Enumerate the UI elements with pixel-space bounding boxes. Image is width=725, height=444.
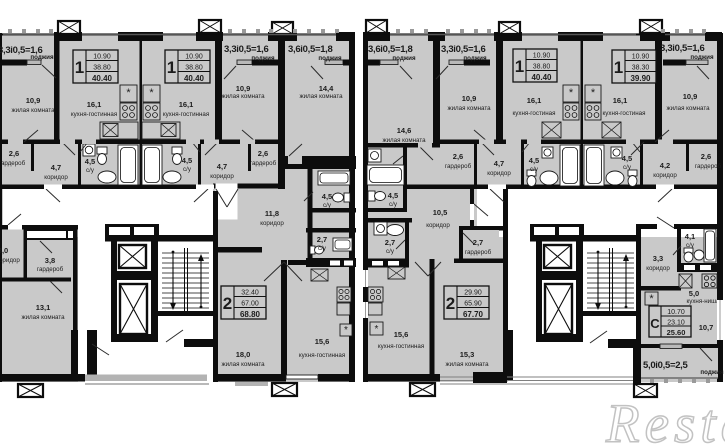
svg-text:кухня-гостинная: кухня-гостинная: [71, 111, 117, 118]
svg-text:*: *: [569, 87, 574, 99]
svg-text:10.90: 10.90: [93, 54, 111, 61]
svg-text:поджия: поджия: [30, 54, 54, 61]
svg-text:10,5: 10,5: [433, 208, 448, 217]
svg-text:кухня-гостинная: кухня-гостинная: [378, 343, 424, 350]
svg-text:с/у: с/у: [86, 167, 95, 174]
svg-text:2: 2: [223, 294, 232, 313]
svg-text:кухня-гостинная: кухня-гостинная: [299, 352, 345, 359]
svg-text:10.70: 10.70: [667, 309, 685, 316]
svg-text:кухня-гостинная: кухня-гостинная: [163, 111, 209, 118]
svg-text:поджия: поджия: [463, 55, 487, 62]
svg-text:1: 1: [167, 58, 176, 77]
svg-text:68.80: 68.80: [240, 310, 261, 319]
svg-text:коридор: коридор: [210, 173, 234, 180]
svg-text:жилая комната: жилая комната: [221, 361, 265, 368]
svg-text:10,9: 10,9: [683, 92, 698, 101]
svg-text:40.40: 40.40: [92, 74, 113, 83]
svg-text:коридор: коридор: [426, 222, 450, 229]
svg-text:коридор: коридор: [260, 220, 284, 227]
svg-text:14,4: 14,4: [319, 84, 334, 93]
svg-text:39.90: 39.90: [630, 74, 651, 83]
svg-text:10,9: 10,9: [236, 84, 251, 93]
svg-text:10,7: 10,7: [699, 323, 714, 332]
svg-text:15,3: 15,3: [460, 350, 475, 359]
svg-text:с/у: с/у: [386, 248, 395, 255]
svg-text:2,6: 2,6: [258, 149, 268, 158]
svg-text:2,7: 2,7: [385, 238, 395, 247]
svg-text:2,7: 2,7: [317, 235, 327, 244]
svg-text:3,3i0,5=1,6: 3,3i0,5=1,6: [441, 44, 486, 55]
svg-text:5,0: 5,0: [689, 289, 699, 298]
svg-text:гардероб: гардероб: [695, 163, 722, 170]
svg-text:4,5: 4,5: [529, 156, 539, 165]
svg-text:25.60: 25.60: [667, 328, 686, 337]
svg-text:Restate: Restate: [605, 393, 725, 444]
svg-text:С: С: [650, 316, 660, 331]
svg-text:с/у: с/у: [389, 201, 398, 208]
svg-text:*: *: [591, 87, 596, 99]
svg-text:с/у: с/у: [623, 164, 632, 171]
svg-text:*: *: [344, 325, 348, 336]
svg-text:коридор: коридор: [0, 257, 20, 264]
svg-text:2,6: 2,6: [701, 152, 711, 161]
svg-text:жилая комната: жилая комната: [445, 361, 489, 368]
svg-text:2,6: 2,6: [9, 149, 19, 158]
svg-text:40.40: 40.40: [531, 73, 552, 82]
svg-text:2,7: 2,7: [473, 238, 483, 247]
svg-text:10,9: 10,9: [462, 94, 477, 103]
svg-text:поджия: поджия: [392, 55, 416, 62]
svg-text:10.90: 10.90: [632, 54, 650, 61]
svg-text:2,6: 2,6: [453, 152, 463, 161]
svg-text:гардероб: гардероб: [250, 160, 277, 167]
svg-text:13,1: 13,1: [36, 303, 51, 312]
svg-text:*: *: [126, 87, 131, 99]
svg-text:1: 1: [75, 58, 84, 77]
svg-text:3,3: 3,3: [653, 254, 663, 263]
svg-text:жилая комната: жилая комната: [11, 107, 55, 114]
svg-text:1: 1: [614, 58, 623, 77]
svg-text:жилая комната: жилая комната: [666, 105, 710, 112]
svg-text:10.90: 10.90: [533, 53, 551, 60]
svg-text:кухня-гостиная: кухня-гостиная: [603, 110, 646, 117]
svg-text:10.90: 10.90: [185, 54, 203, 61]
svg-text:3,3i0,5=1,6: 3,3i0,5=1,6: [224, 44, 269, 55]
svg-text:38.80: 38.80: [93, 65, 111, 72]
svg-text:гардероб: гардероб: [445, 163, 472, 170]
svg-text:кухня-ниша: кухня-ниша: [686, 298, 720, 305]
svg-text:4,5: 4,5: [388, 191, 398, 200]
svg-text:4,5: 4,5: [85, 157, 95, 166]
svg-text:коридор: коридор: [653, 172, 677, 179]
svg-text:3,8: 3,8: [45, 256, 55, 265]
svg-text:38.30: 38.30: [632, 65, 650, 72]
svg-text:4,5: 4,5: [622, 154, 632, 163]
svg-text:с/у: с/у: [183, 166, 192, 173]
svg-text:1: 1: [515, 57, 524, 76]
svg-text:3,0: 3,0: [0, 246, 8, 255]
svg-text:16,1: 16,1: [179, 100, 194, 109]
svg-text:16,1: 16,1: [613, 96, 628, 105]
svg-text:с/у: с/у: [323, 202, 332, 209]
svg-text:жилая комната: жилая комната: [299, 93, 343, 100]
svg-text:18,0: 18,0: [236, 350, 251, 359]
svg-text:с/у: с/у: [318, 245, 327, 252]
svg-text:23.10: 23.10: [667, 320, 685, 327]
svg-text:*: *: [149, 87, 154, 99]
svg-text:коридор: коридор: [487, 170, 511, 177]
svg-text:жилая комната: жилая комната: [382, 137, 426, 144]
svg-text:*: *: [649, 293, 654, 305]
svg-text:4,5: 4,5: [182, 156, 192, 165]
svg-text:4,5: 4,5: [322, 192, 332, 201]
svg-text:с/у: с/у: [530, 166, 539, 173]
svg-text:*: *: [375, 324, 379, 335]
svg-text:поджия: поджия: [690, 54, 714, 61]
svg-text:29.90: 29.90: [464, 290, 482, 297]
svg-text:поджия: поджия: [251, 55, 275, 62]
svg-text:3,6i0,5=1,8: 3,6i0,5=1,8: [368, 44, 413, 55]
svg-text:38.80: 38.80: [533, 64, 551, 71]
svg-text:4,7: 4,7: [217, 162, 227, 171]
svg-text:жилая комната: жилая комната: [447, 105, 491, 112]
svg-text:15,6: 15,6: [394, 330, 409, 339]
svg-text:38.80: 38.80: [185, 65, 203, 72]
svg-text:4,7: 4,7: [494, 159, 504, 168]
svg-text:16,1: 16,1: [87, 100, 102, 109]
svg-text:3,3i0,5=1,6: 3,3i0,5=1,6: [660, 43, 705, 54]
svg-text:32.40: 32.40: [241, 290, 259, 297]
svg-text:коридор: коридор: [646, 265, 670, 272]
svg-text:67.70: 67.70: [463, 310, 484, 319]
svg-text:16,1: 16,1: [527, 96, 542, 105]
svg-text:4,7: 4,7: [51, 163, 61, 172]
svg-text:гардероб: гардероб: [0, 160, 26, 167]
svg-text:40.40: 40.40: [184, 74, 205, 83]
svg-text:2: 2: [446, 294, 455, 313]
svg-text:4,1: 4,1: [685, 232, 695, 241]
svg-text:поджия: поджия: [700, 369, 724, 376]
svg-text:кухня-гостиная: кухня-гостиная: [513, 110, 556, 117]
svg-text:14,6: 14,6: [397, 126, 412, 135]
svg-text:жилая комната: жилая комната: [21, 314, 65, 321]
svg-text:15,6: 15,6: [315, 337, 330, 346]
svg-text:4,2: 4,2: [660, 161, 670, 170]
svg-text:5,0i0,5=2,5: 5,0i0,5=2,5: [643, 360, 689, 371]
svg-text:с/у: с/у: [686, 242, 695, 249]
svg-text:гардероб: гардероб: [465, 249, 492, 256]
svg-text:жилая комната: жилая комната: [221, 93, 265, 100]
svg-text:65.90: 65.90: [464, 301, 482, 308]
svg-text:поджия: поджия: [318, 55, 342, 62]
svg-text:11,8: 11,8: [265, 209, 279, 218]
svg-text:67.00: 67.00: [241, 301, 259, 308]
svg-text:10,9: 10,9: [26, 96, 41, 105]
svg-text:коридор: коридор: [44, 174, 68, 181]
svg-text:3,6i0,5=1,8: 3,6i0,5=1,8: [288, 44, 333, 55]
svg-text:гардероб: гардероб: [37, 266, 64, 273]
